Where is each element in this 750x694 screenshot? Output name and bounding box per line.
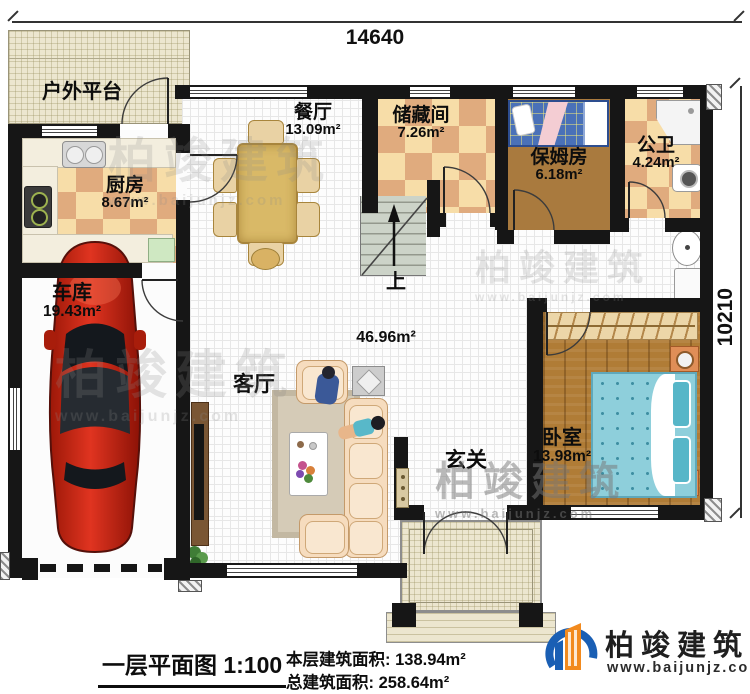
- armchair-bottom: [299, 514, 349, 558]
- coffee-table: [289, 432, 328, 496]
- cabinet-knob: [401, 475, 405, 479]
- wall-segment: [8, 263, 142, 278]
- room-label-storage: 储藏间7.26m²: [378, 106, 464, 142]
- dimension-tick: [733, 10, 744, 21]
- wall-segment: [610, 218, 629, 232]
- plan-title: 一层平面图: [102, 652, 217, 678]
- window: [190, 85, 307, 99]
- wardrobe: [545, 312, 698, 340]
- room-label-foyer: 玄关: [430, 450, 502, 472]
- floor-area-label: 本层建筑面积:: [286, 651, 391, 669]
- hatch-column: [706, 84, 722, 110]
- burner: [31, 192, 48, 209]
- wall-segment: [176, 200, 190, 578]
- cushion: [349, 443, 383, 479]
- dining-table: [237, 143, 298, 244]
- stove: [24, 186, 52, 228]
- wall-segment: [175, 85, 190, 99]
- bed-sheet: [583, 102, 607, 145]
- wall-segment: [495, 85, 508, 230]
- porch-floor: [400, 520, 542, 612]
- shower-drain: [688, 108, 694, 114]
- pendant-lamp: [251, 248, 280, 270]
- plan-scale: 1:100: [223, 652, 282, 678]
- wall-segment: [590, 298, 713, 312]
- wall-segment: [507, 505, 527, 520]
- outdoor-platform-floor: [8, 30, 190, 124]
- wardrobe-rail: [548, 325, 695, 327]
- nightstand: [670, 346, 699, 372]
- kitchen-sink: [62, 141, 106, 168]
- sink-bowl: [85, 146, 103, 164]
- cushion: [349, 521, 383, 555]
- total-area-value: 258.64m²: [379, 674, 450, 692]
- wall-segment: [357, 563, 407, 578]
- wall-segment: [8, 450, 22, 578]
- cabinet-knob: [401, 486, 405, 490]
- window: [513, 85, 575, 99]
- brand-logo: 柏竣建筑 www.baijunjz.com: [543, 616, 743, 686]
- wall-segment: [527, 298, 543, 520]
- tv: [194, 424, 204, 520]
- room-label-garage: 车库19.43m²: [22, 283, 122, 321]
- brand-website: www.baijunjz.com: [607, 660, 750, 676]
- table-decor: [297, 441, 304, 448]
- bed-pillow: [671, 436, 691, 484]
- dining-chair: [213, 158, 237, 193]
- wall-segment: [97, 124, 120, 138]
- window: [227, 563, 357, 578]
- room-label-bath: 公卫4.24m²: [616, 136, 696, 172]
- dining-chair: [296, 158, 320, 193]
- wall-segment: [176, 124, 190, 153]
- cushion: [349, 483, 383, 519]
- flower-bouquet: [296, 470, 304, 478]
- cutting-board: [148, 238, 175, 262]
- person-sitting: [314, 366, 340, 406]
- dimension-tick: [7, 10, 18, 21]
- room-label-bedroom: 卧室13.98m²: [512, 428, 612, 466]
- dimension-right-label: 10210: [714, 288, 738, 346]
- hatch-column: [178, 580, 202, 592]
- room-label-living: 客厅: [218, 374, 290, 396]
- sink-bowl: [66, 146, 84, 164]
- dimension-tick: [729, 507, 740, 518]
- wall-segment: [575, 85, 637, 99]
- window: [8, 388, 22, 450]
- wash-basin: [672, 230, 702, 266]
- wall-segment: [527, 505, 571, 520]
- garage-door-dashed-line: [40, 564, 162, 572]
- nightstand-lamp: [676, 351, 694, 369]
- toilet-bowl: [680, 170, 698, 188]
- cabinet-knob: [401, 497, 405, 501]
- person-head: [322, 366, 335, 379]
- porch-post: [519, 603, 543, 627]
- dining-chair: [213, 202, 237, 237]
- room-label-kitchen: 厨房8.67m²: [82, 176, 168, 212]
- table-decor: [309, 442, 317, 450]
- side-table-inlay: [356, 369, 381, 394]
- wall-segment: [497, 230, 514, 244]
- living-area-label: 46.96m²: [346, 330, 426, 347]
- floor-area-value: 138.94m²: [395, 651, 466, 669]
- room-label-dining: 餐厅13.09m²: [270, 103, 356, 139]
- window: [42, 124, 97, 138]
- bed-blanket: [538, 102, 568, 145]
- shoe-cabinet: [396, 468, 409, 508]
- wall-segment: [427, 180, 440, 237]
- wall-segment: [554, 230, 610, 244]
- wall-segment: [8, 124, 42, 138]
- brand-logo-icon: [543, 618, 599, 680]
- hatch-column: [0, 552, 10, 580]
- bed-pillow: [511, 103, 536, 136]
- plan-title-block: 一层平面图 1:100: [98, 646, 286, 688]
- porch-post: [392, 603, 416, 627]
- stairs-direction-label: 上: [382, 272, 410, 293]
- wall-segment: [307, 85, 410, 99]
- dimension-line-right: [740, 86, 742, 518]
- window: [571, 505, 658, 520]
- platform-divider-line: [9, 58, 189, 59]
- nanny-bed: [508, 100, 609, 147]
- window: [637, 85, 683, 99]
- basin-drain: [685, 245, 690, 250]
- washing-machine: [674, 268, 702, 302]
- hatch-column: [704, 498, 722, 522]
- porch-inner-line: [409, 529, 533, 603]
- total-area-label: 总建筑面积:: [286, 674, 374, 692]
- burner: [31, 209, 48, 226]
- brand-name: 柏竣建筑: [605, 622, 749, 664]
- garage-door-post: [22, 558, 38, 580]
- dining-chair: [296, 202, 320, 237]
- room-label-nanny: 保姆房6.18m²: [516, 148, 602, 184]
- dimension-tick: [729, 77, 740, 88]
- window: [410, 85, 450, 99]
- flower-bouquet: [304, 474, 313, 483]
- dimension-top-label: 14640: [338, 26, 412, 50]
- total-area-line: 总建筑面积: 258.64m²: [286, 669, 449, 693]
- cushion: [305, 521, 345, 554]
- garage-door-post: [164, 558, 190, 580]
- side-table: [352, 366, 385, 396]
- dimension-line-top: [12, 21, 742, 23]
- wall-segment: [440, 213, 446, 227]
- wall-segment: [362, 85, 378, 213]
- room-label-outdoor-platform: 户外平台: [22, 82, 142, 103]
- floor-plan: 14640 10210: [0, 0, 750, 694]
- floor-area-line: 本层建筑面积: 138.94m²: [286, 646, 466, 670]
- bed-pillow: [671, 380, 691, 428]
